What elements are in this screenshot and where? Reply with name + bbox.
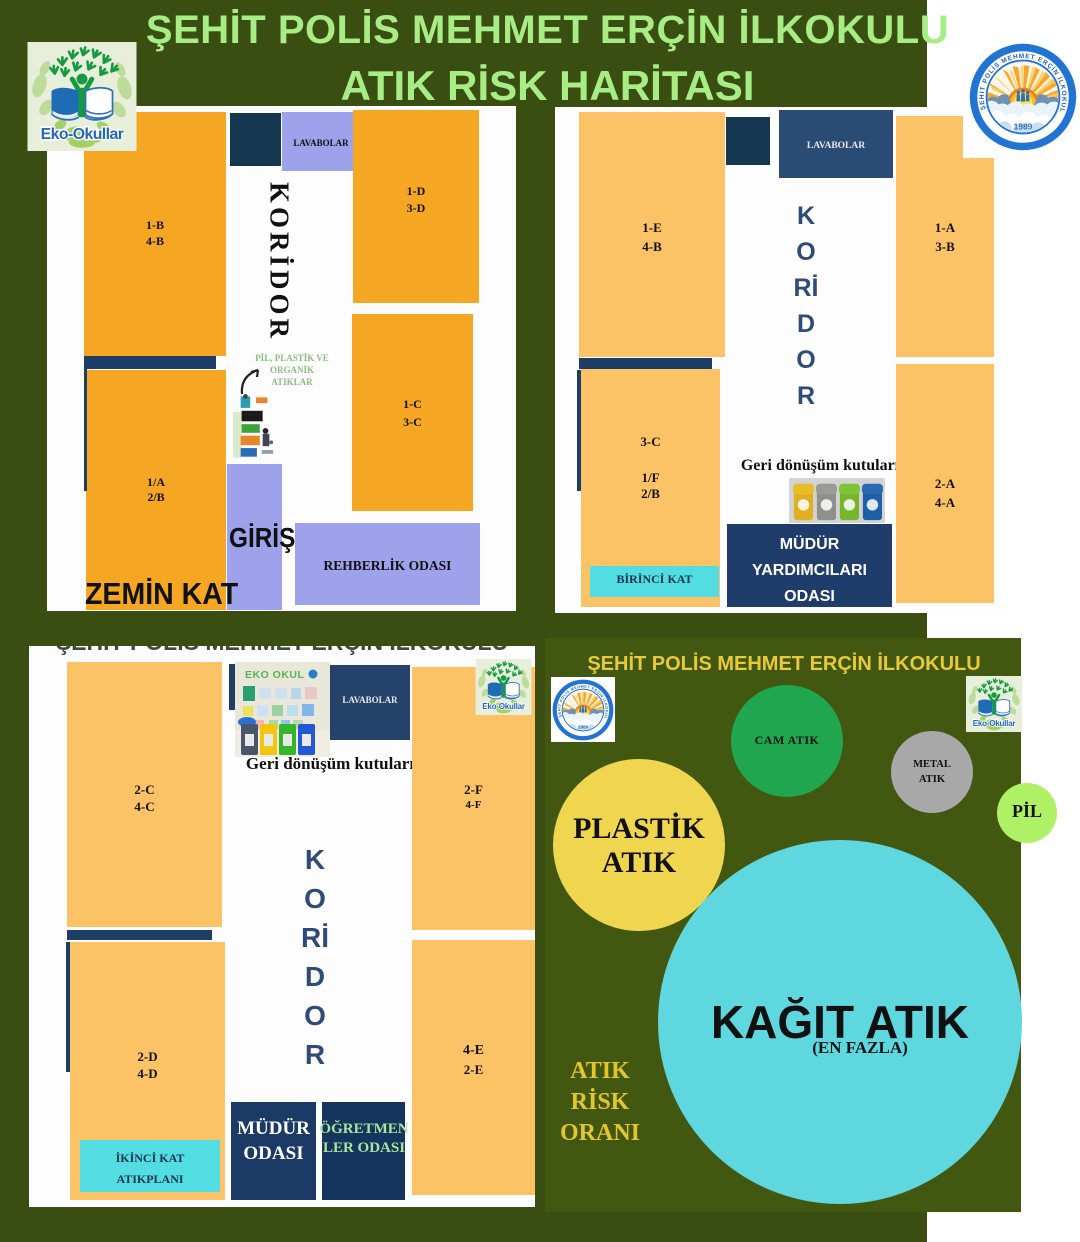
svg-text:EKO OKUL: EKO OKUL bbox=[245, 669, 305, 681]
